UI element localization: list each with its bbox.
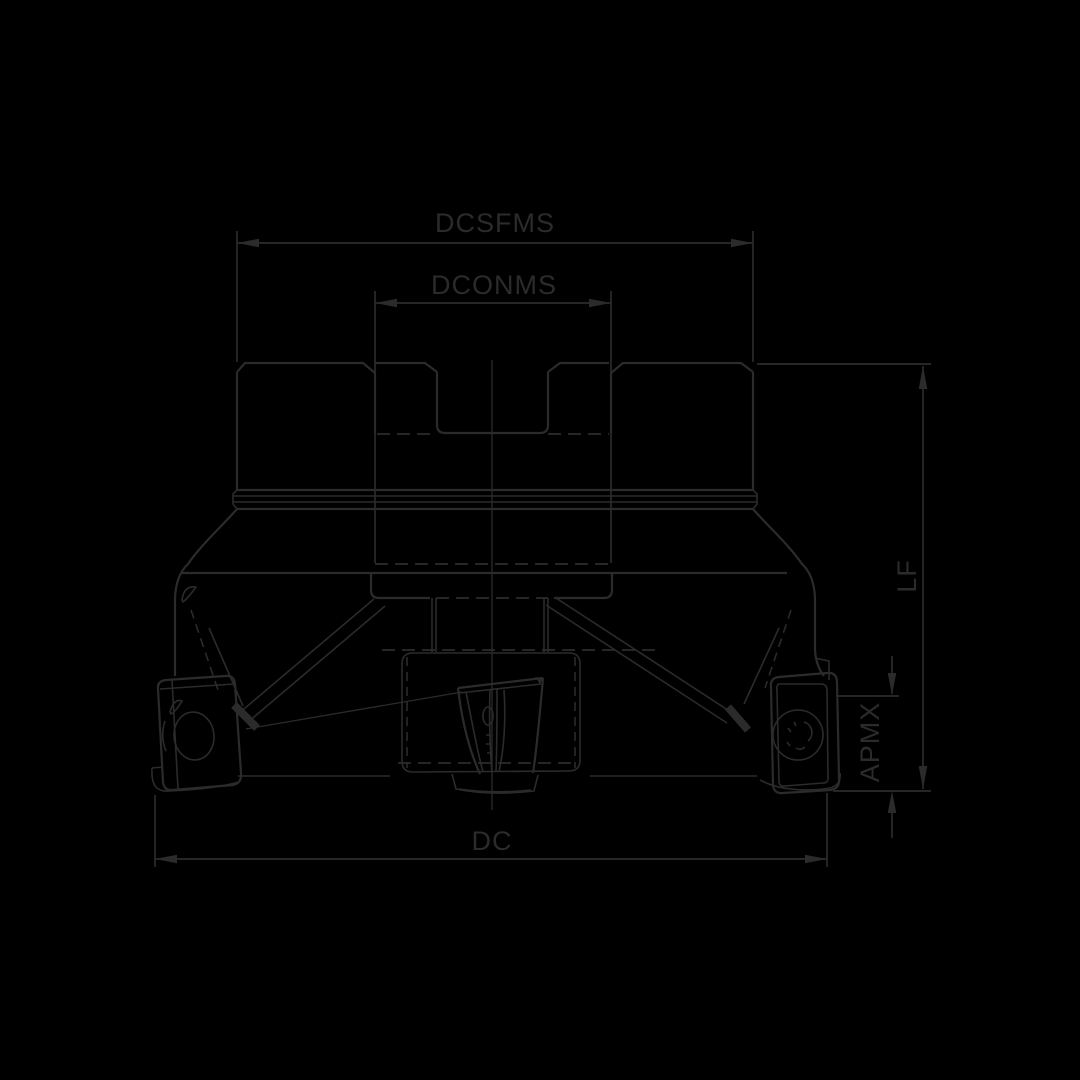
dimension-dc: DC: [155, 793, 827, 867]
face-mill-dimension-drawing: DCSFMS DCONMS LF APMX DC: [0, 0, 1080, 1080]
dcsfms-label: DCSFMS: [435, 208, 555, 238]
arrow-up-icon: [888, 791, 897, 813]
flute-lines: [170, 587, 791, 729]
dimension-dconms: DCONMS: [375, 270, 611, 563]
flange-rings: [233, 490, 757, 509]
technical-drawing-canvas: DCSFMS DCONMS LF APMX DC: [0, 0, 1080, 1080]
cutter-body: [152, 360, 840, 810]
lf-label: LF: [892, 559, 922, 593]
center-insert: [452, 677, 543, 793]
dimension-apmx: APMX: [836, 656, 899, 838]
arrow-left-icon: [375, 299, 397, 308]
arrow-up-icon: [919, 366, 928, 389]
dimension-lf: LF: [757, 364, 931, 791]
cone-body: [175, 509, 829, 680]
arrow-right-icon: [805, 855, 827, 864]
arrow-left-icon: [155, 855, 177, 864]
arrow-right-icon: [731, 239, 753, 248]
insert-screw-head: [773, 710, 823, 760]
dc-label: DC: [472, 826, 513, 856]
arrow-down-icon: [919, 766, 928, 789]
arrow-right-icon: [589, 299, 611, 308]
arrow-down-icon: [888, 673, 897, 695]
dconms-label: DCONMS: [431, 270, 557, 300]
right-insert: [728, 673, 840, 793]
arbor-top-section: [237, 363, 753, 564]
left-insert: [152, 676, 257, 791]
apmx-label: APMX: [855, 702, 885, 783]
center-boss: [371, 573, 660, 652]
arrow-left-icon: [237, 239, 259, 248]
